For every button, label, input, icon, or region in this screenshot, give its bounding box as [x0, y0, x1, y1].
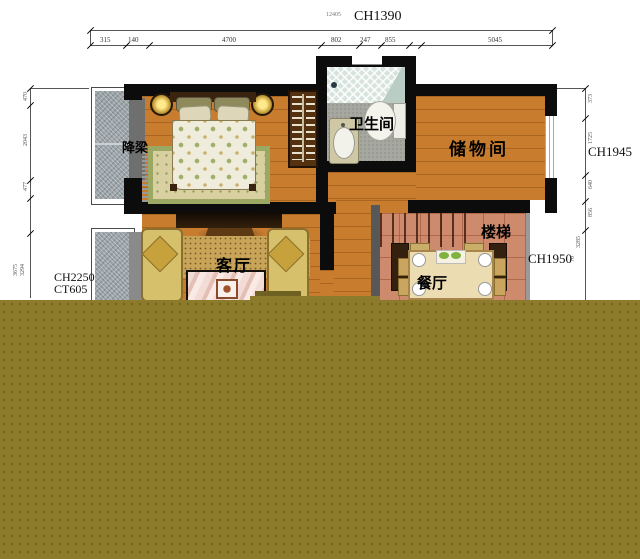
beam-label: 降梁 — [122, 137, 148, 156]
bedroom-left-corner-wall — [124, 84, 142, 100]
bed-foot-post-left — [170, 184, 177, 191]
left-tick-3: 3675 — [13, 264, 19, 276]
left-dim-line — [30, 88, 31, 298]
stairs-label: 楼梯 — [481, 221, 511, 242]
right-dim-label-lower: CH1950 — [528, 251, 572, 267]
dim-seg-5: 855 — [385, 36, 396, 44]
bedroom-right-wall-stub — [316, 172, 328, 202]
tick — [549, 42, 556, 49]
dim-seg-1: 140 — [128, 36, 139, 44]
bathroom-label: 卫生间 — [349, 113, 394, 134]
dim-seg-4: 247 — [360, 36, 371, 44]
bed-foot-post-right — [249, 184, 256, 191]
living-right-wall — [320, 214, 334, 270]
right-wall-lower — [545, 178, 557, 213]
dim-seg-6: 5045 — [488, 36, 502, 44]
floor-plan-image: 降梁 卫生间 储物间 客厅 楼梯 餐厅 CH1390 12405 315 140… — [0, 0, 640, 559]
storage-label: 储物间 — [449, 135, 509, 160]
wardrobe-rod — [302, 94, 304, 162]
corridor-floor — [328, 172, 404, 202]
right-tick-0: 373 — [588, 94, 594, 103]
dim-seg-3: 802 — [331, 36, 342, 44]
bathroom-window — [352, 56, 382, 65]
dining-dish-1 — [439, 252, 449, 259]
left-dim-label-ct: CT605 — [54, 282, 87, 297]
right-tick-4: 3285 — [576, 236, 582, 248]
living-window — [95, 232, 129, 300]
dining-plate-4 — [478, 282, 492, 296]
left-tick-0: 470 — [23, 92, 29, 101]
top-dim-total: 12405 — [326, 12, 341, 18]
top-dim-label: CH1390 — [354, 9, 401, 25]
right-tick-2: 640 — [588, 180, 594, 189]
olive-overlay — [0, 300, 640, 559]
right-dim-label-upper: CH1945 — [588, 144, 632, 160]
corridor-floor-3 — [334, 213, 371, 300]
top-dim-line-1 — [90, 30, 553, 31]
right-dim-line — [585, 88, 586, 300]
storage-window — [545, 116, 557, 178]
dining-label: 餐厅 — [417, 272, 447, 293]
dim-seg-2: 4700 — [222, 36, 236, 44]
bed-blanket — [172, 120, 256, 190]
left-tick-2: 477 — [23, 182, 29, 191]
right-dim-conn — [557, 88, 585, 89]
sink-faucet — [341, 123, 345, 127]
dim-seg-0: 315 — [100, 36, 111, 44]
dining-dish-2 — [451, 252, 461, 259]
dining-plate-1 — [412, 253, 426, 267]
shower-corner-panel — [383, 67, 405, 103]
coffee-table-medallion — [216, 279, 238, 299]
corridor-gray-wall — [371, 205, 380, 300]
right-tick-3: 856 — [588, 208, 594, 217]
right-tick-1: 1725 — [588, 132, 594, 144]
wardrobe-hangers-right — [306, 96, 315, 160]
wardrobe-hangers-left — [292, 96, 302, 160]
right-wall-upper — [545, 84, 557, 116]
left-tick-1: 2043 — [23, 134, 29, 146]
living-label: 客厅 — [216, 252, 252, 276]
dining-chair-right-1 — [494, 258, 506, 276]
corridor-doorway-floor — [404, 172, 416, 202]
dining-chair-right-2 — [494, 278, 506, 296]
shower-head-icon — [331, 82, 337, 88]
storage-bottom-wall — [408, 200, 530, 213]
left-tick-4: 3294 — [20, 264, 26, 276]
storage-top-wall — [404, 84, 557, 96]
dining-plate-2 — [478, 253, 492, 267]
left-dim-conn — [31, 88, 89, 89]
stair-treads — [380, 213, 468, 247]
